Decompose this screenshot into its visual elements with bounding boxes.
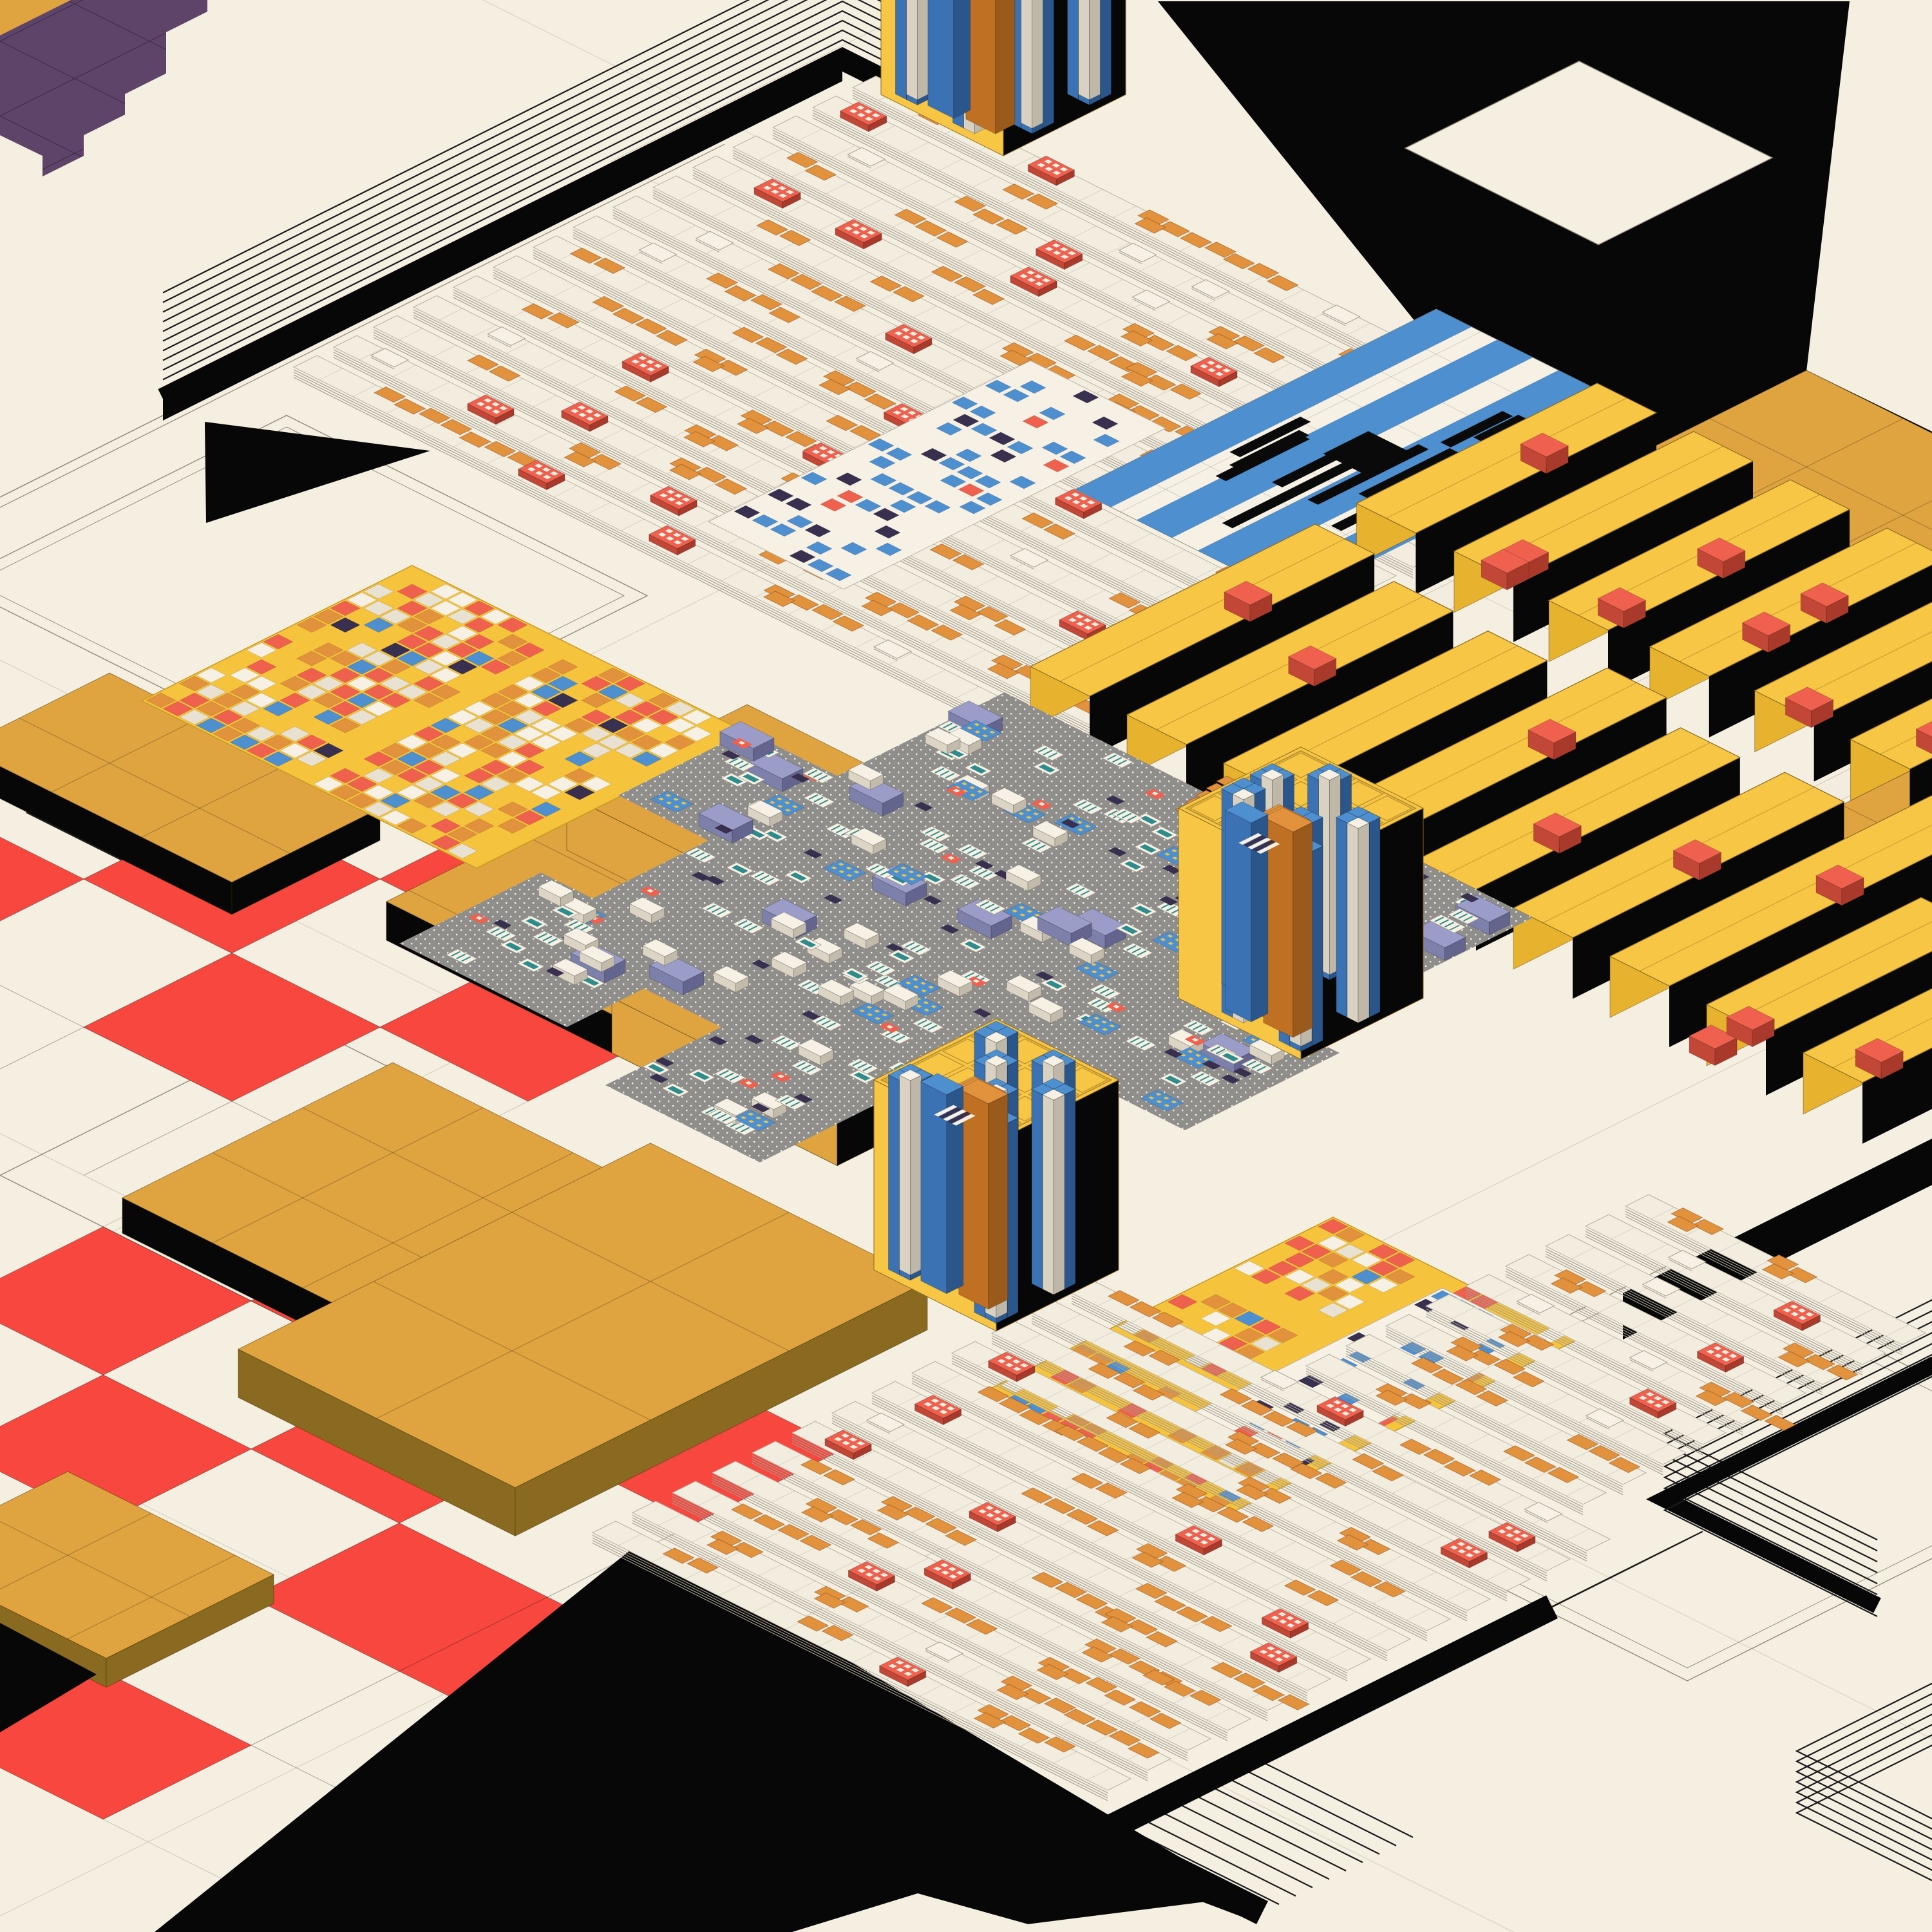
yellow-tower-east (1179, 747, 1423, 1059)
yellow-tower-south (874, 1019, 1119, 1331)
artwork-canvas (0, 0, 1932, 1932)
isometric-generative-artwork (0, 0, 1932, 1932)
artwork-svg (0, 0, 1932, 1932)
